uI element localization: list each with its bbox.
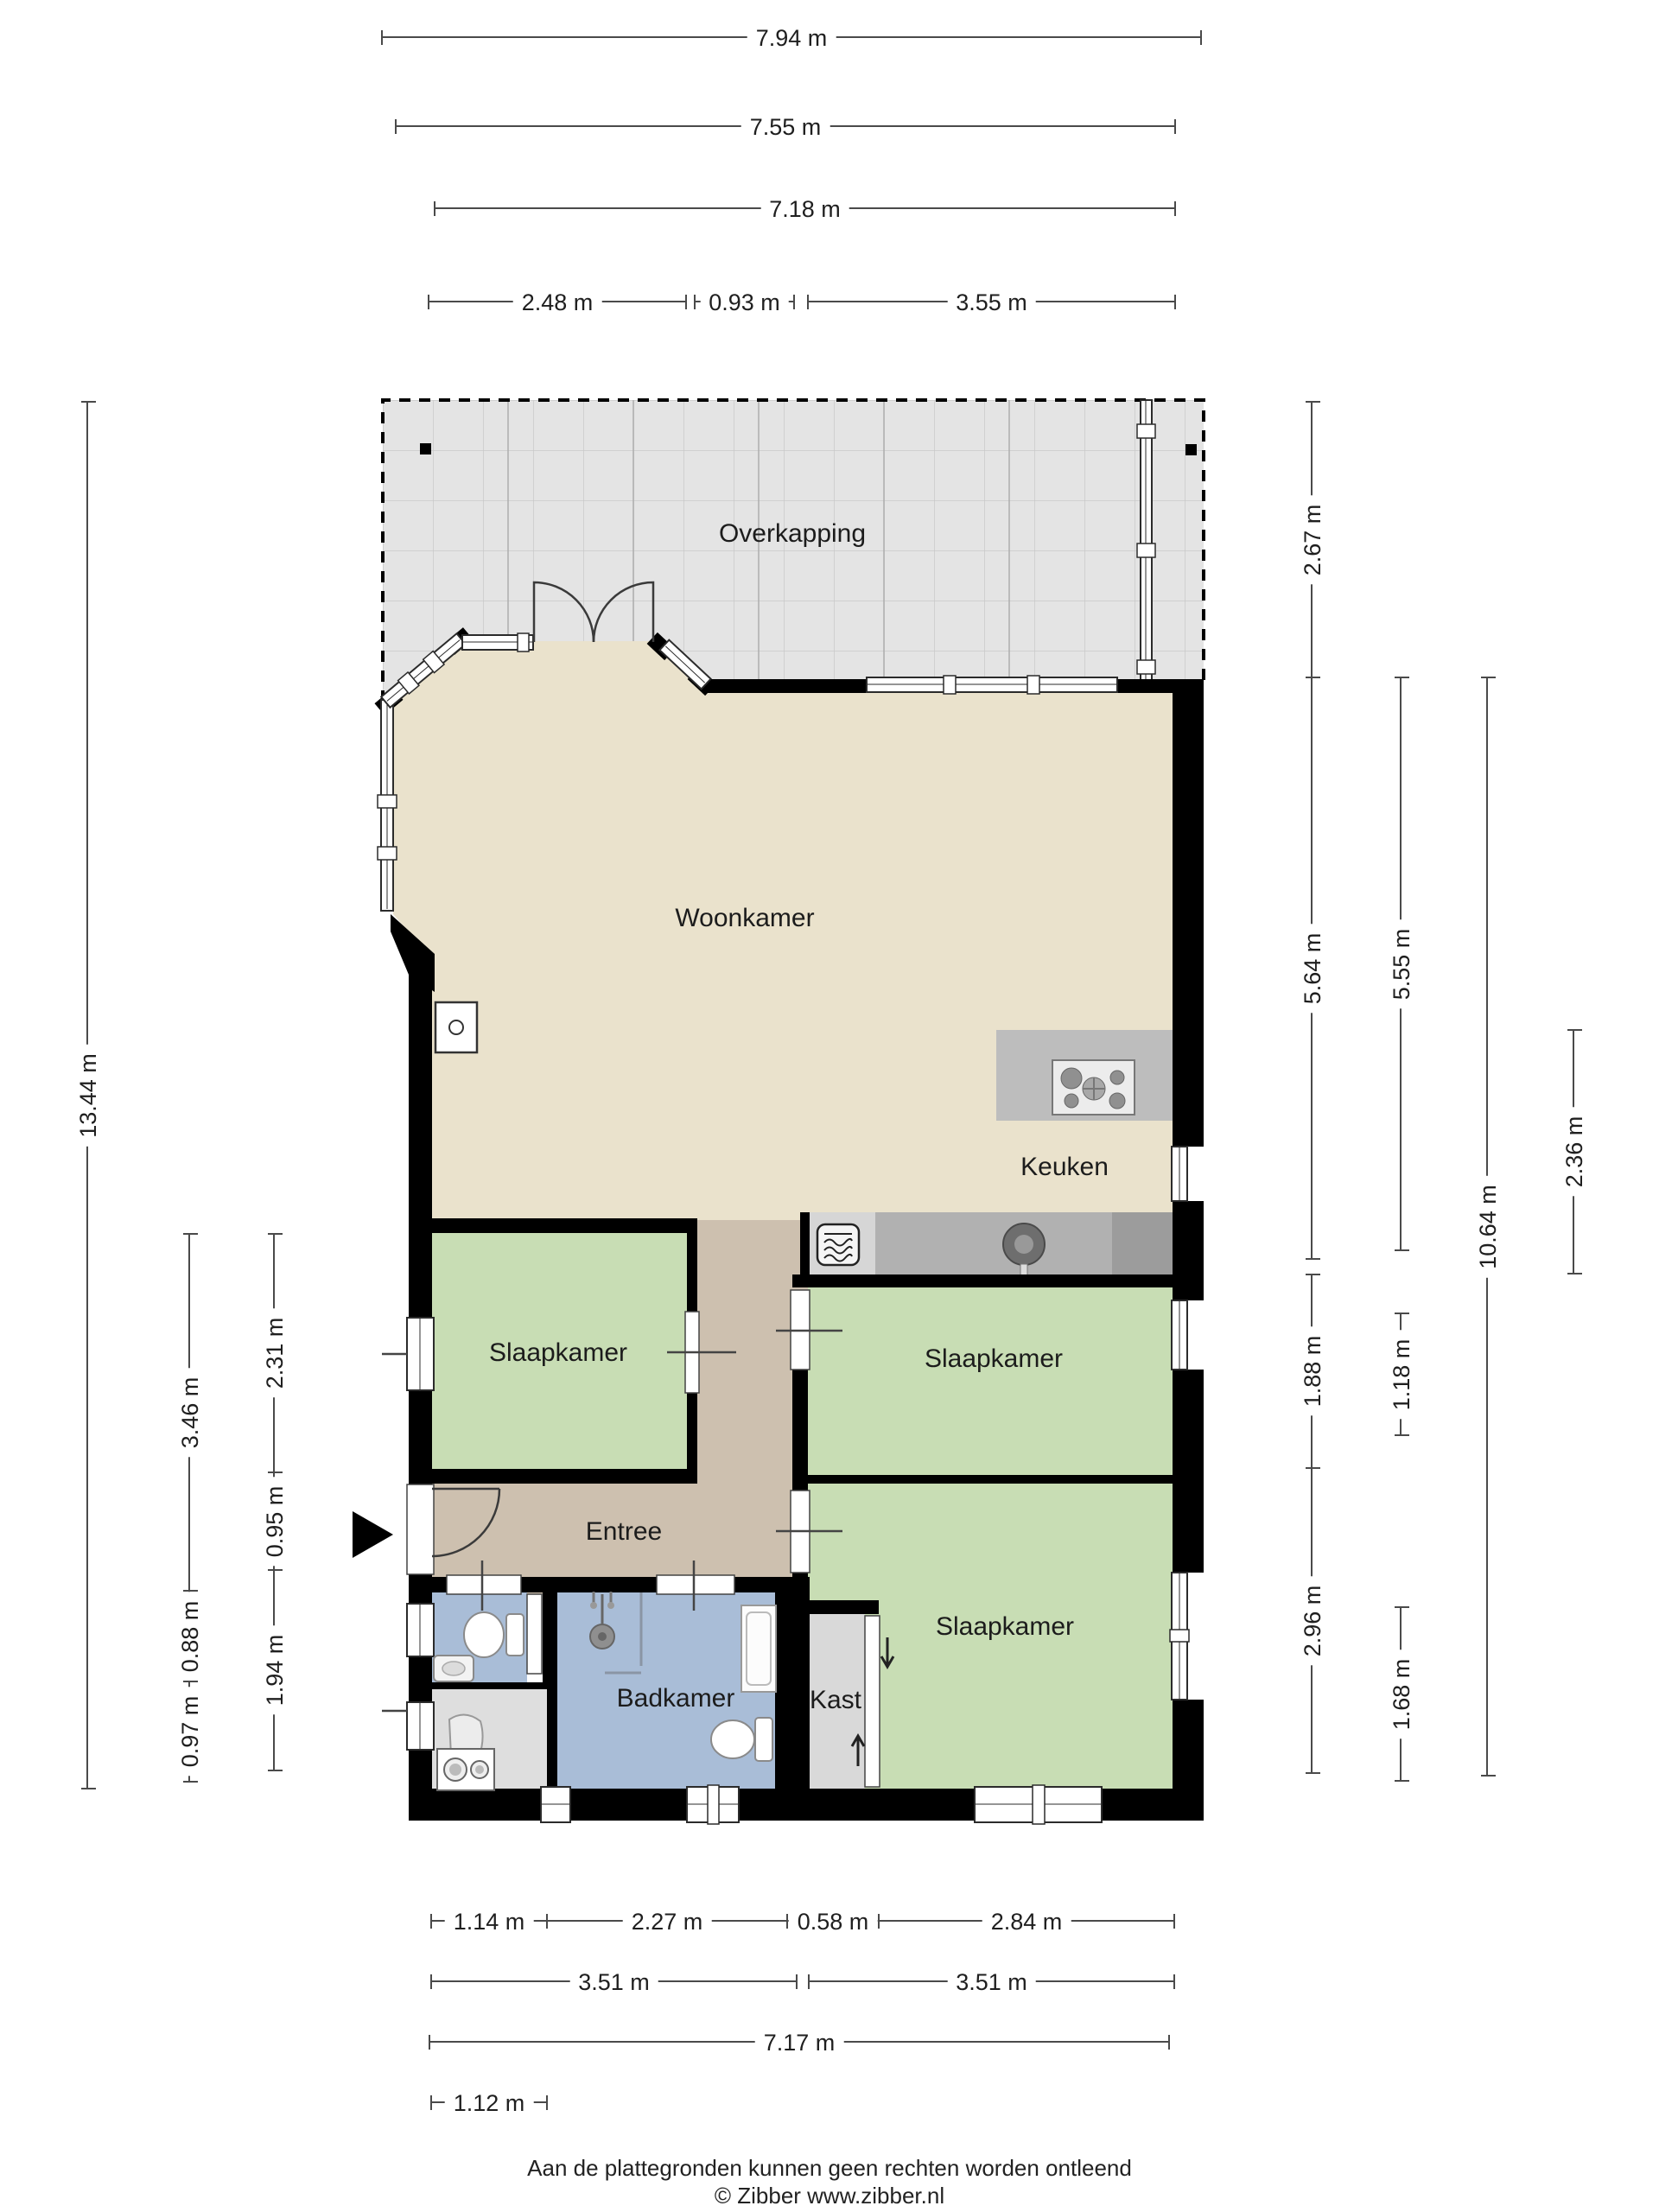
- window-right-slaapkamer-mid: [1172, 1300, 1187, 1370]
- bathtub-icon: [741, 1605, 776, 1692]
- dim-label: 5.55 m: [1389, 919, 1415, 1008]
- dim-label: 10.64 m: [1476, 1176, 1502, 1278]
- dim-label: 1.68 m: [1389, 1649, 1415, 1738]
- dim-right-555: 5.55 m: [1400, 677, 1402, 1250]
- dim-label: 0.58 m: [789, 1910, 878, 1935]
- window-left-toilet: [407, 1604, 434, 1656]
- dim-bottom-351b: 3.51 m: [809, 1980, 1174, 1982]
- label-entree: Entree: [586, 1517, 662, 1546]
- dim-right-188: 1.88 m: [1311, 1274, 1313, 1468]
- dim-top-248: 2.48 m: [429, 301, 686, 302]
- dim-label: 1.12 m: [445, 2091, 534, 2117]
- dim-left-231: 2.31 m: [273, 1234, 275, 1472]
- dim-left-095: 0.95 m: [273, 1472, 275, 1570]
- dim-label: 2.36 m: [1562, 1108, 1588, 1197]
- dim-label: 1.18 m: [1389, 1330, 1415, 1419]
- dim-label: 3.46 m: [178, 1368, 204, 1457]
- dim-right-267: 2.67 m: [1311, 402, 1313, 677]
- dim-right-168: 1.68 m: [1400, 1607, 1402, 1781]
- dim-left-088: 0.88 m: [188, 1591, 190, 1681]
- dim-bottom-058: 0.58 m: [787, 1920, 879, 1922]
- label-slaapkamer-mid: Slaapkamer: [925, 1344, 1063, 1373]
- microwave-icon: [817, 1224, 859, 1265]
- dim-label: 7.94 m: [747, 26, 836, 52]
- dim-right-236: 2.36 m: [1573, 1030, 1574, 1274]
- dim-left-194: 1.94 m: [273, 1570, 275, 1770]
- handbasin-icon: [434, 1656, 474, 1681]
- dim-label: 7.18 m: [760, 197, 849, 223]
- window-front-long: [867, 676, 1117, 694]
- dim-label: 2.48 m: [513, 290, 602, 316]
- window-left-slaapkamer: [407, 1318, 434, 1390]
- footer-copyright: © Zibber www.zibber.nl: [0, 2183, 1659, 2209]
- dim-right-564: 5.64 m: [1311, 677, 1313, 1259]
- toilet-badkamer-icon: [711, 1718, 772, 1761]
- dim-left-097: 0.97 m: [188, 1681, 190, 1782]
- dim-bottom-227: 2.27 m: [547, 1920, 787, 1922]
- canopy-post-right: [1185, 444, 1197, 455]
- dim-label: 0.88 m: [178, 1592, 204, 1681]
- label-slaapkamer-bottom: Slaapkamer: [936, 1612, 1074, 1641]
- floorplan-drawing: Overkapping Woonkamer Keuken Slaapkamer …: [0, 0, 1659, 2212]
- dim-bottom-114: 1.14 m: [431, 1920, 547, 1922]
- window-bottom-slaapkamer: [975, 1785, 1102, 1824]
- dim-left-346: 3.46 m: [188, 1234, 190, 1591]
- window-right-slaapkamer-bottom: [1170, 1573, 1189, 1700]
- dim-label: 2.67 m: [1300, 495, 1326, 584]
- door-leaf-toilet: [527, 1594, 542, 1674]
- dim-left-1344: 13.44 m: [86, 402, 88, 1789]
- dim-top-794: 7.94 m: [382, 36, 1201, 38]
- window-left-bay: [378, 700, 397, 911]
- toilet-icon: [464, 1612, 524, 1657]
- footer-disclaimer: Aan de plattegronden kunnen geen rechten…: [0, 2155, 1659, 2182]
- dim-top-718: 7.18 m: [435, 207, 1175, 209]
- front-door-opening: [407, 1484, 434, 1574]
- floor-slaapkamer-mid: [808, 1287, 1173, 1475]
- dim-label: 7.17 m: [755, 2031, 844, 2056]
- dim-label: 3.55 m: [947, 290, 1036, 316]
- dim-top-755: 7.55 m: [396, 125, 1175, 127]
- window-bottom-kast: [687, 1785, 739, 1824]
- door-kast-sliding: [865, 1616, 880, 1787]
- window-bottom-badkamer: [541, 1787, 570, 1822]
- dim-label: 0.95 m: [263, 1477, 289, 1566]
- label-slaapkamer-left: Slaapkamer: [489, 1338, 627, 1367]
- door-badkamer: [657, 1575, 734, 1594]
- dim-label: 0.93 m: [700, 290, 789, 316]
- canopy-railing: [1137, 400, 1155, 681]
- window-left-laundry: [407, 1702, 434, 1750]
- dim-label: 2.27 m: [623, 1910, 712, 1935]
- window-bay-front: [462, 633, 533, 652]
- dim-label: 0.97 m: [178, 1688, 204, 1777]
- dim-right-1064: 10.64 m: [1486, 677, 1488, 1776]
- dim-label: 7.55 m: [741, 115, 830, 141]
- dim-bottom-112: 1.12 m: [431, 2101, 547, 2103]
- label-overkapping: Overkapping: [719, 519, 866, 548]
- dim-label: 1.94 m: [263, 1626, 289, 1715]
- dim-bottom-351a: 3.51 m: [431, 1980, 797, 1982]
- dim-top-093: 0.93 m: [695, 301, 794, 302]
- dim-right-296: 2.96 m: [1311, 1468, 1313, 1773]
- dim-label: 3.51 m: [569, 1970, 658, 1996]
- dim-label: 2.96 m: [1300, 1576, 1326, 1665]
- dim-label: 3.51 m: [947, 1970, 1036, 1996]
- entrance-arrow-icon: [353, 1511, 393, 1558]
- dim-label: 2.31 m: [263, 1309, 289, 1398]
- label-kast: Kast: [810, 1686, 862, 1714]
- dim-bottom-284: 2.84 m: [879, 1920, 1174, 1922]
- label-badkamer: Badkamer: [617, 1684, 735, 1713]
- label-keuken: Keuken: [1020, 1153, 1109, 1181]
- dim-label: 13.44 m: [76, 1045, 102, 1147]
- window-right-keuken: [1172, 1147, 1187, 1201]
- dim-top-355: 3.55 m: [808, 301, 1175, 302]
- floorplan-page: Overkapping Woonkamer Keuken Slaapkamer …: [0, 0, 1659, 2212]
- label-woonkamer: Woonkamer: [675, 904, 814, 932]
- dim-bottom-717: 7.17 m: [429, 2041, 1169, 2043]
- dim-right-118: 1.18 m: [1400, 1313, 1402, 1435]
- fireplace-icon: [435, 1002, 477, 1052]
- door-toilet: [447, 1575, 521, 1594]
- dim-label: 1.88 m: [1300, 1327, 1326, 1416]
- stove-icon: [1052, 1060, 1135, 1115]
- dim-label: 2.84 m: [982, 1910, 1071, 1935]
- canopy-post-left: [420, 443, 431, 454]
- dim-label: 1.14 m: [445, 1910, 534, 1935]
- dim-label: 5.64 m: [1300, 924, 1326, 1013]
